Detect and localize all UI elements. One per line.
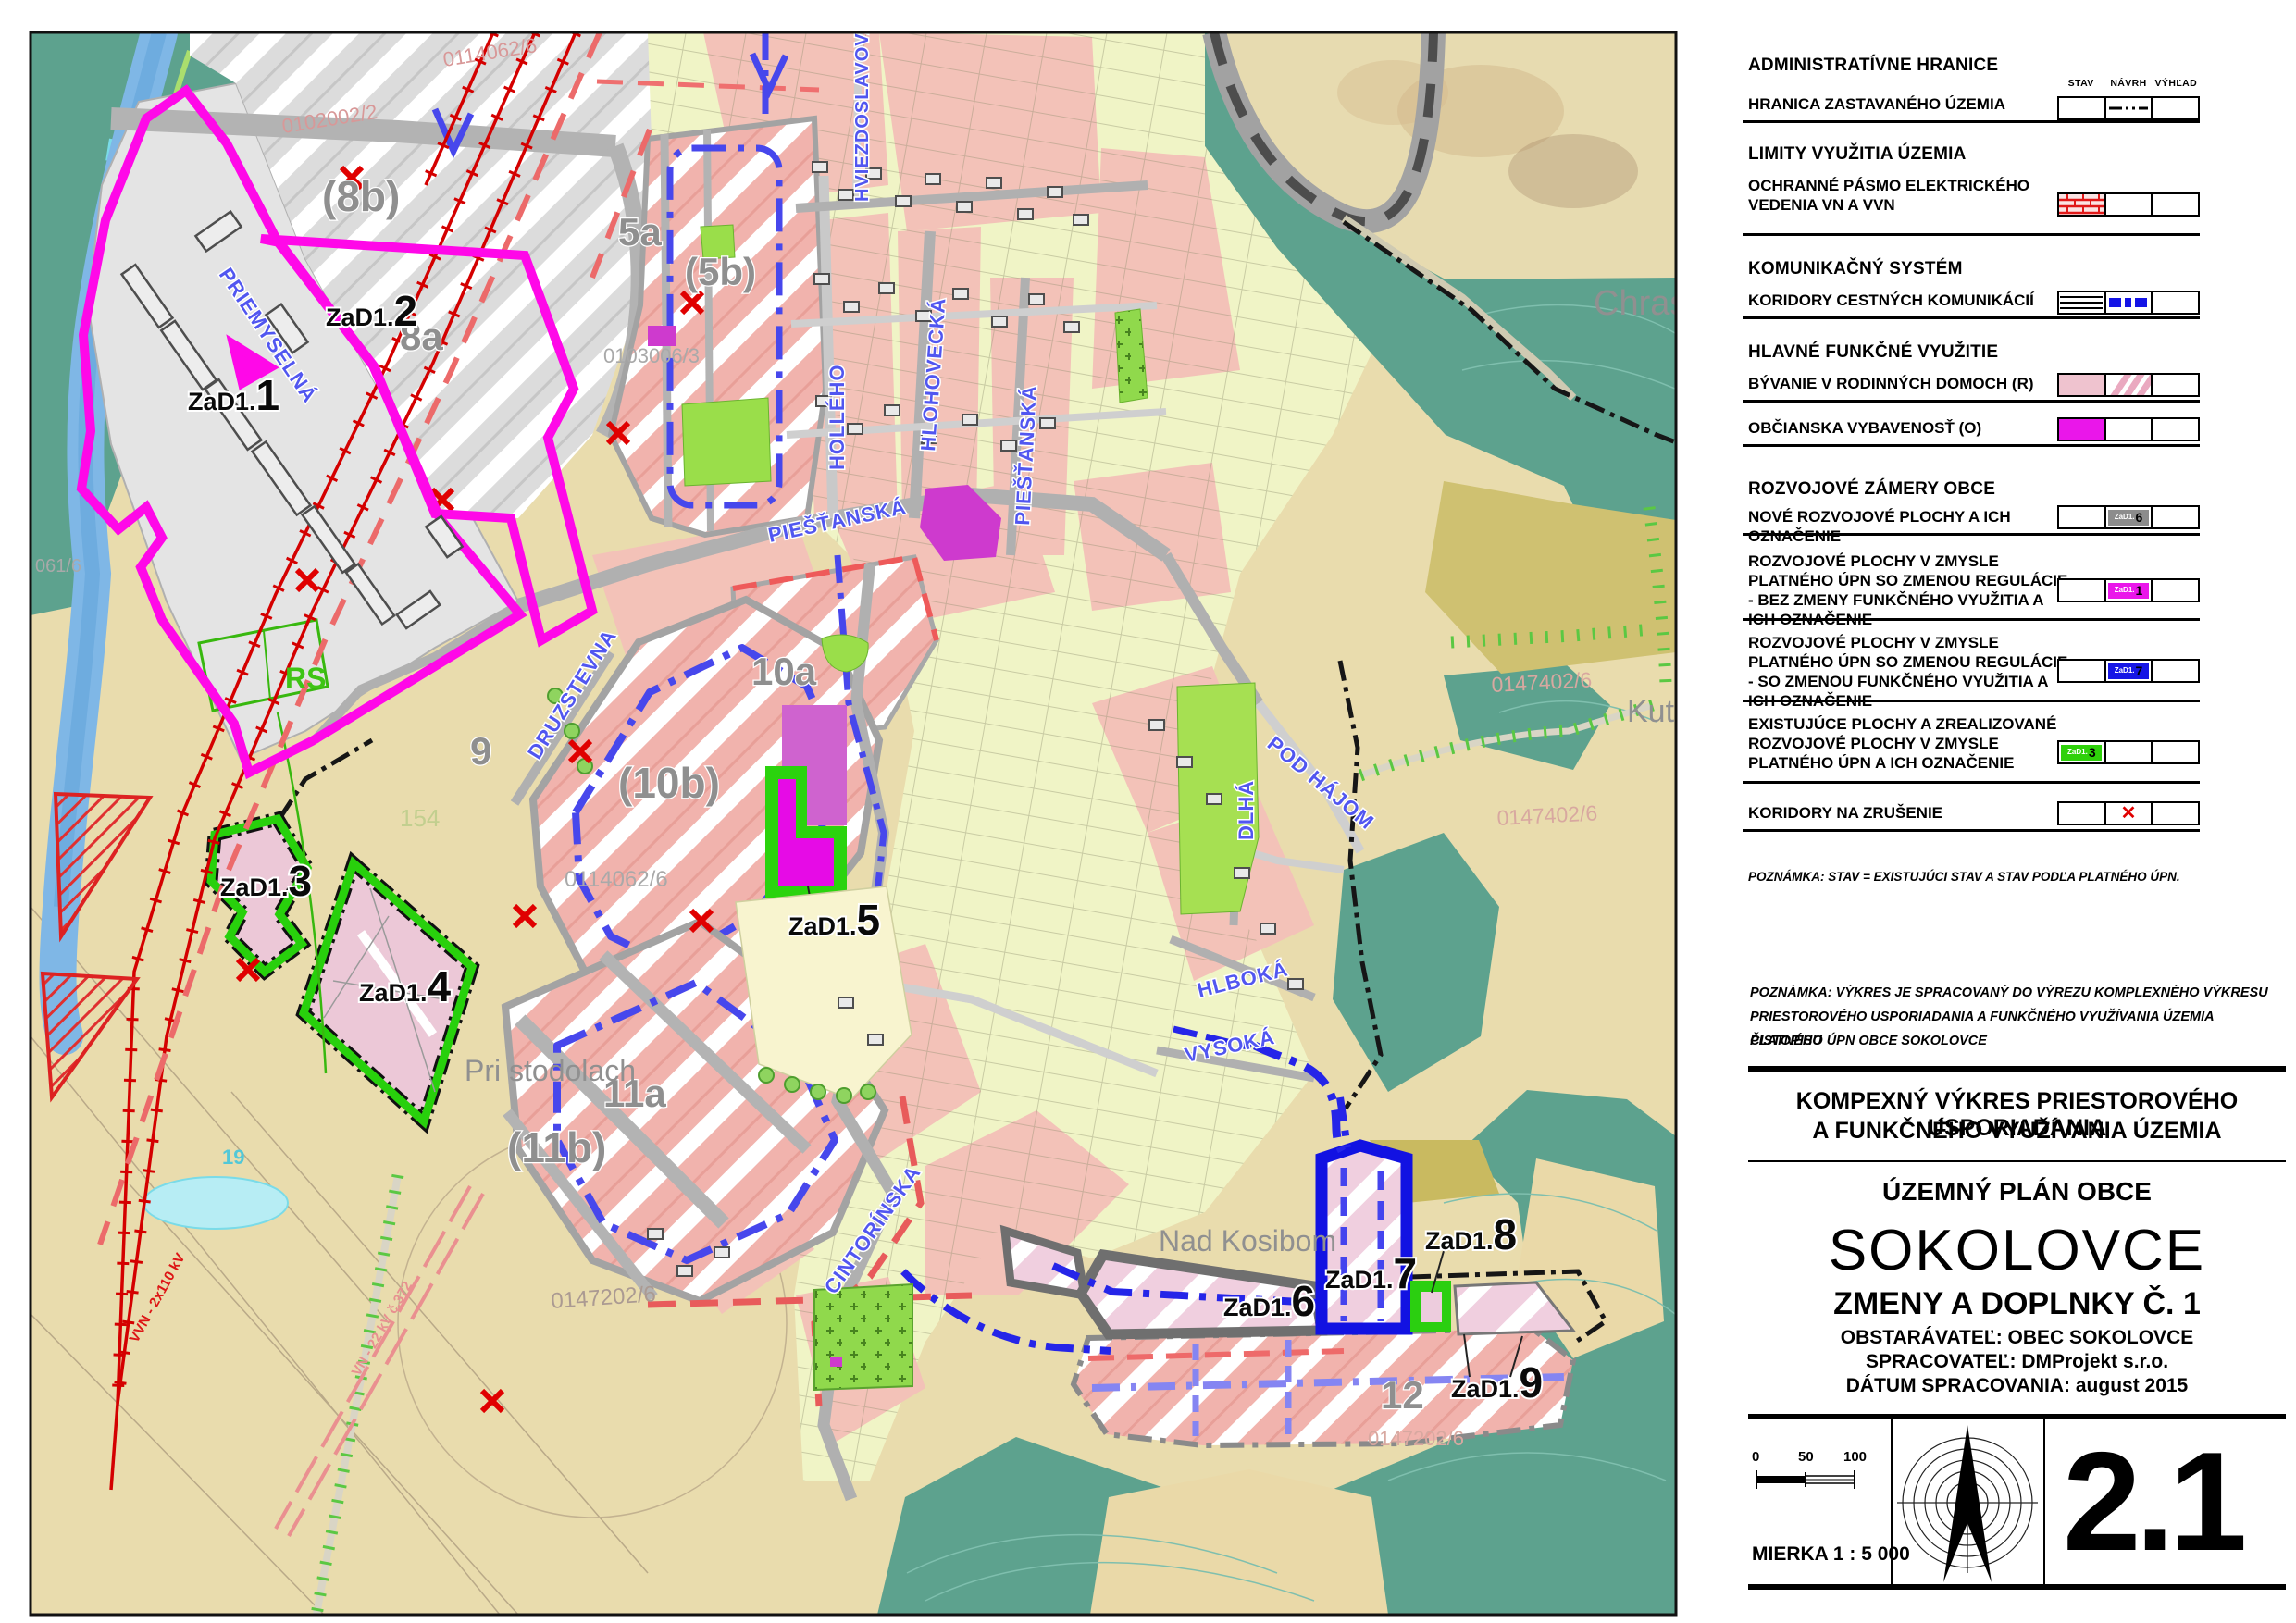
chip-number: 7 [2136,664,2143,677]
legend-symbol-civic [2057,417,2200,441]
scale-tick-0: 0 [1752,1449,1759,1465]
zone-label-11b: (11b) [507,1123,606,1171]
legend-item-label: OCHRANNÉ PÁSMO ELEKTRICKÉHO VEDENIA VN A… [1748,176,2068,215]
legend-item-label: NOVÉ ROZVOJOVÉ PLOCHY A ICH OZNAČENIE [1748,507,2068,546]
col-stav: STAV [2057,78,2104,89]
zone-label-19: 19 [222,1146,244,1169]
legend-symbol-existing-areas: ZaD1.3 [2057,740,2200,764]
chip-prefix: ZaD1. [2115,667,2135,675]
chip-prefix: ZaD1. [2067,749,2088,756]
zone-label-5b: (5b) [685,250,756,293]
chip-number: 3 [2089,746,2096,759]
place-chrast: Chrast [1594,284,1697,323]
legend-section-title: ROZVOJOVÉ ZÁMERY OBCE [1748,479,1995,500]
titleblock-note-line: PLATNÉHO ÚPN OBCE SOKOLOVCE [1750,1029,2277,1053]
scale-tick-100: 100 [1843,1449,1867,1465]
chip-number: 6 [2136,511,2143,524]
chip-prefix: ZaD1. [2115,514,2135,521]
parcel-label: 061/6 [35,556,81,576]
legend-symbol-function-change: ZaD1.7 [2057,659,2200,683]
street-hviezdoslavova: HVIEZDOSLAVOVA [852,19,873,202]
date-line: DÁTUM SPRACOVANIA: august 2015 [1748,1375,2286,1397]
chip-number: 1 [2136,584,2143,597]
parcel-label: 0147202/6 [1368,1427,1464,1450]
author-line: SPRACOVATEĽ: DMProjekt s.r.o. [1748,1351,2286,1373]
legend-section-title: HLAVNÉ FUNKČNÉ VYUŽITIE [1748,342,1998,363]
legend-item-label: OBČIANSKA VYBAVENOSŤ (O) [1748,418,2068,438]
legend-symbol-boundary [2057,96,2200,120]
titleblock-note-line: POZNÁMKA: VÝKRES JE SPRACOVANÝ DO VÝREZU… [1750,981,2277,1005]
legend-panel: ADMINISTRATÍVNE HRANICE STAV NÁVRH VÝHĽA… [1748,0,2286,1623]
north-arrow [1893,1419,2043,1584]
legend-symbol-protection-zone [2057,192,2200,217]
parcel-label: 0103006/3 [603,344,700,367]
municipality-name: SOKOLOVCE [1748,1218,2286,1283]
plan-sheet: 0114062/6 0102002/2 0103006/3 0114062/6 … [0,0,2296,1623]
zone-label-10a: 10a [751,650,817,693]
client-line: OBSTARÁVATEĽ: OBEC SOKOLOVCE [1748,1327,2286,1349]
legend-section-title: LIMITY VYUŽITIA ÚZEMIA [1748,144,1967,165]
zone-label-9: 9 [470,729,491,773]
chip-prefix: ZaD1. [2115,587,2135,594]
zone-label-12: 12 [1381,1373,1424,1417]
legend-section-title: ADMINISTRATÍVNE HRANICE [1748,56,1998,76]
place-pri-stodolach: Pri stodolach [465,1054,636,1087]
place-nad-kosibom: Nad Kosibom [1159,1224,1336,1258]
scale-bar [1756,1469,1860,1492]
place-rs: RS [285,662,326,695]
amendment-title: ZMENY A DOPLNKY Č. 1 [1748,1286,2286,1322]
scale-tick-50: 50 [1798,1449,1814,1465]
drawing-title-line2: A FUNKČNÉHO VYUŽÍVANIA ÚZEMIA [1748,1118,2286,1145]
zone-label-8b: (8b) [322,172,400,220]
legend-symbol-road-corridors [2057,291,2200,315]
zone-label-154: 154 [400,804,440,832]
legend-column-headers: STAV NÁVRH VÝHĽAD [2057,78,2200,89]
street-holleho: HOLLÉHO [825,364,849,470]
legend-symbol-new-areas: ZaD1.6 [2057,505,2200,529]
legend-symbol-housing [2057,373,2200,397]
sheet-number: 2.1 [2063,1421,2241,1583]
parcel-label: 0114062/6 [565,867,668,892]
cemetery-chapel [830,1357,842,1367]
legend-section-title: KOMUNIKAČNÝ SYSTÉM [1748,259,1963,279]
legend-item-label: EXISTUJÚCE PLOCHY A ZREALIZOVANÉ ROZVOJO… [1748,714,2068,773]
col-vyhlad: VÝHĽAD [2153,78,2200,89]
legend-item-label: KORIDORY CESTNÝCH KOMUNIKÁCIÍ [1748,291,2068,310]
zone-label-10b: (10b) [618,759,720,807]
street-dlha: DLHÁ [1235,780,1258,840]
col-navrh: NÁVRH [2104,78,2152,89]
legend-symbol-cancelled-corridors: ✕ [2057,801,2200,825]
zone-label-5a: 5a [618,210,662,254]
legend-symbol-regulation-change: ZaD1.1 [2057,578,2200,602]
legend-note: POZNÁMKA: STAV = EXISTUJÚCI STAV A STAV … [1748,870,2180,884]
legend-item-label: HRANICA ZASTAVANÉHO ÚZEMIA [1748,94,2068,114]
cemetery [814,1284,912,1390]
legend-item-label: KORIDORY NA ZRUŠENIE [1748,803,2068,823]
red-x-icon: ✕ [2121,804,2137,823]
plan-type: ÚZEMNÝ PLÁN OBCE [1748,1177,2286,1207]
legend-item-label: BÝVANIE V RODINNÝCH DOMOCH (R) [1748,374,2068,393]
place-kutik: Kutik [1627,694,1698,729]
scale-text: MIERKA 1 : 5 000 [1752,1543,1910,1566]
